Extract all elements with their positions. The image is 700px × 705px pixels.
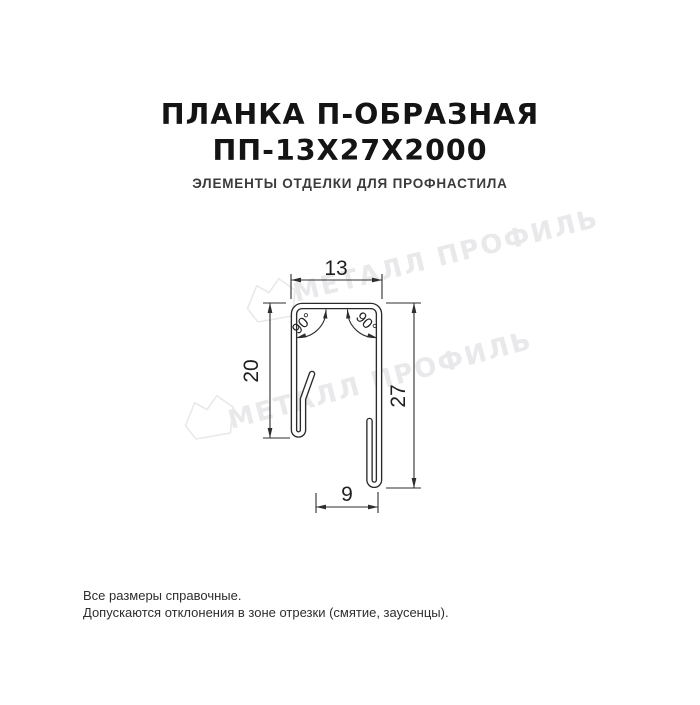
dim-label-20: 20 <box>240 359 263 382</box>
dimension-right-height: 27 <box>386 303 421 488</box>
dimension-bottom-width: 9 <box>316 483 378 513</box>
footer-notes: Все размеры справочные. Допускаются откл… <box>83 587 449 621</box>
dim-label-13: 13 <box>324 257 347 280</box>
footer-note-1: Все размеры справочные. <box>83 587 449 604</box>
footer-note-2: Допускаются отклонения в зоне отрезки (с… <box>83 604 449 621</box>
angle-annotation-right: 90° <box>345 309 380 340</box>
dim-label-9: 9 <box>341 483 353 506</box>
dim-label-27: 27 <box>387 384 410 407</box>
watermark-middle: МЕТАЛЛ ПРОФИЛЬ <box>181 326 535 441</box>
